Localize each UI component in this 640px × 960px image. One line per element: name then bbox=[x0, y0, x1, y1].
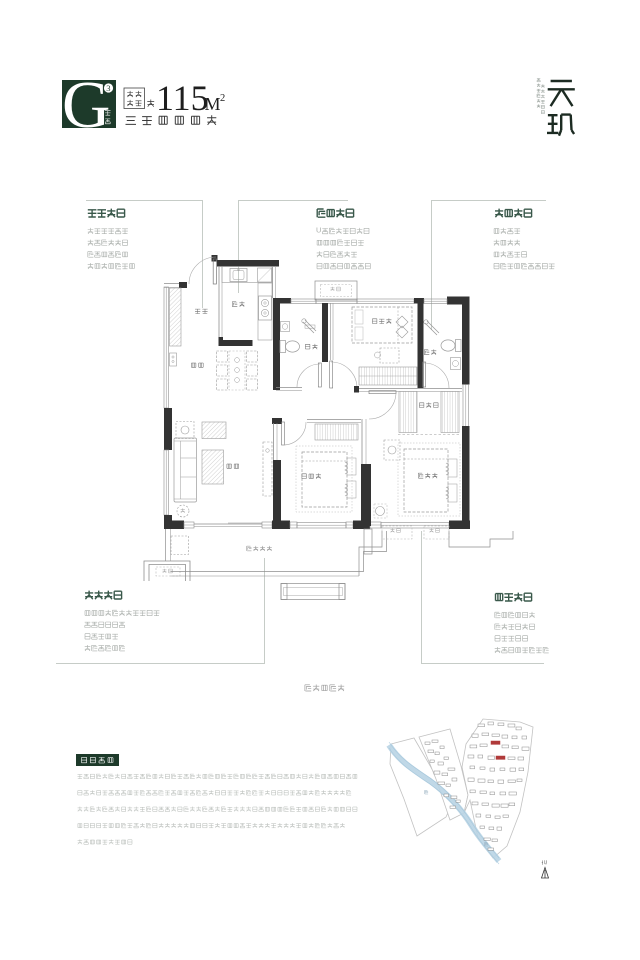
svg-text:115: 115 bbox=[156, 78, 209, 118]
svg-text:2: 2 bbox=[220, 93, 225, 104]
svg-text:U: U bbox=[316, 225, 321, 234]
svg-text:3: 3 bbox=[106, 83, 110, 93]
svg-text:G: G bbox=[62, 68, 110, 142]
svg-text:M: M bbox=[205, 94, 221, 114]
